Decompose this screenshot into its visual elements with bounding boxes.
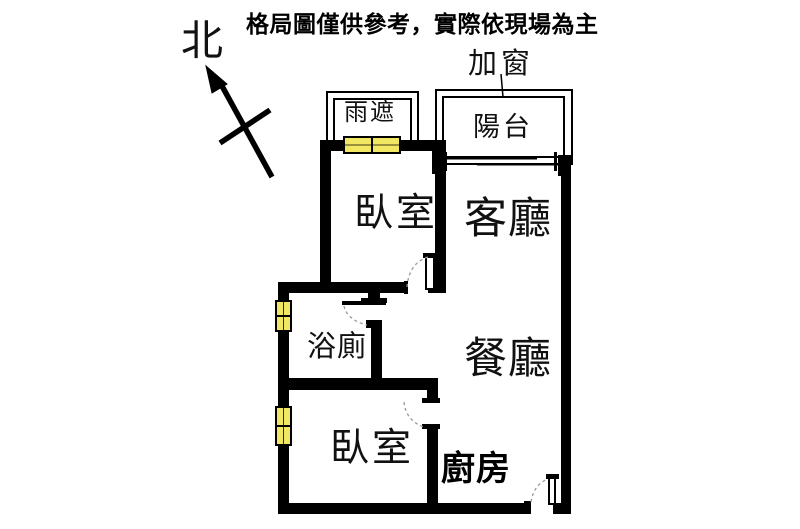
rain-cover-label: 雨遮	[344, 101, 396, 125]
room-label-living-room: 客廳	[464, 198, 552, 241]
window-bedroom-bottom	[276, 407, 291, 445]
disclaimer-text: 格局圖僅供參考，實際依現場為主	[246, 13, 599, 36]
room-label-bathroom: 浴廁	[307, 333, 367, 362]
north-label: 北	[181, 21, 223, 63]
floor-plan-canvas: 格局圖僅供參考，實際依現場為主 北 加窗 雨遮 陽台 臥室 客廳 浴廁 餐廳 臥…	[0, 0, 800, 529]
window-top	[344, 137, 400, 153]
room-label-dining-room: 餐廳	[464, 338, 552, 381]
room-label-bedroom-top: 臥室	[354, 194, 438, 233]
room-label-kitchen: 廚房	[441, 452, 511, 486]
room-label-bedroom-bottom: 臥室	[330, 429, 414, 468]
room-label-balcony: 陽台	[473, 114, 533, 141]
added-window-label: 加窗	[468, 50, 534, 79]
window-bathroom	[276, 301, 291, 331]
north-arrow-icon	[206, 66, 272, 177]
